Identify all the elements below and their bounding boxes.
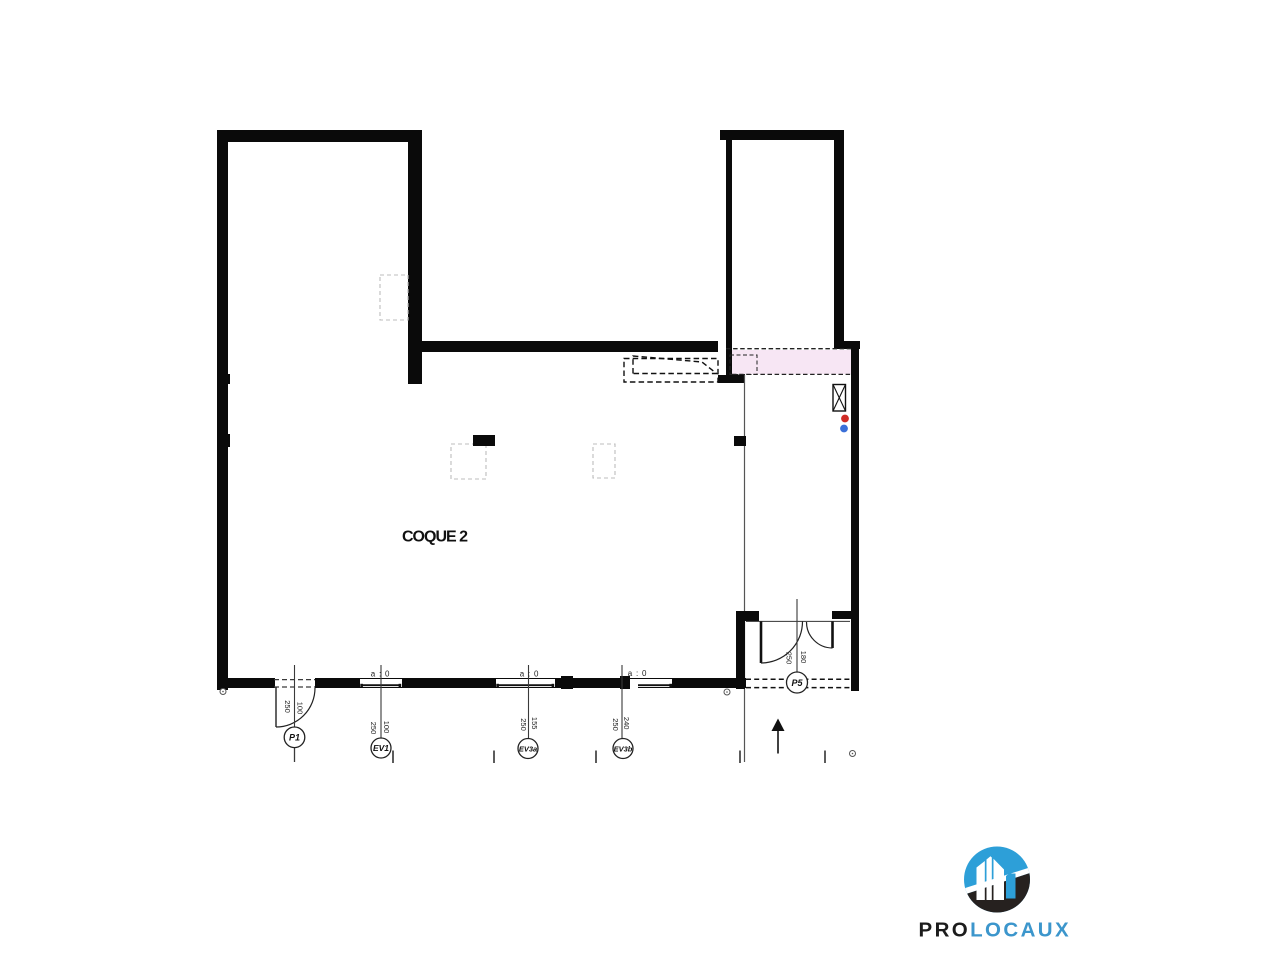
- svg-text:PROLOCAUX: PROLOCAUX: [919, 919, 1072, 942]
- svg-text:250: 250: [785, 652, 794, 665]
- svg-text:EV3b: EV3b: [614, 745, 633, 754]
- svg-text:P1: P1: [289, 733, 300, 743]
- svg-text:100: 100: [382, 721, 391, 734]
- svg-text:COQUE 2: COQUE 2: [402, 529, 468, 546]
- svg-text:250: 250: [611, 718, 620, 731]
- svg-text:240: 240: [622, 717, 631, 730]
- svg-text:P5: P5: [791, 678, 803, 688]
- svg-text:250: 250: [283, 700, 292, 713]
- svg-text:a : 0: a : 0: [371, 670, 391, 679]
- svg-text:100: 100: [296, 702, 305, 715]
- svg-text:EV1: EV1: [373, 743, 389, 753]
- svg-text:a : 0: a : 0: [628, 669, 648, 678]
- svg-text:155: 155: [530, 717, 539, 730]
- svg-text:EV3a: EV3a: [519, 745, 537, 754]
- svg-text:180: 180: [799, 651, 808, 664]
- svg-text:250: 250: [369, 722, 378, 735]
- svg-text:250: 250: [519, 718, 528, 731]
- svg-text:a : 0: a : 0: [520, 670, 540, 679]
